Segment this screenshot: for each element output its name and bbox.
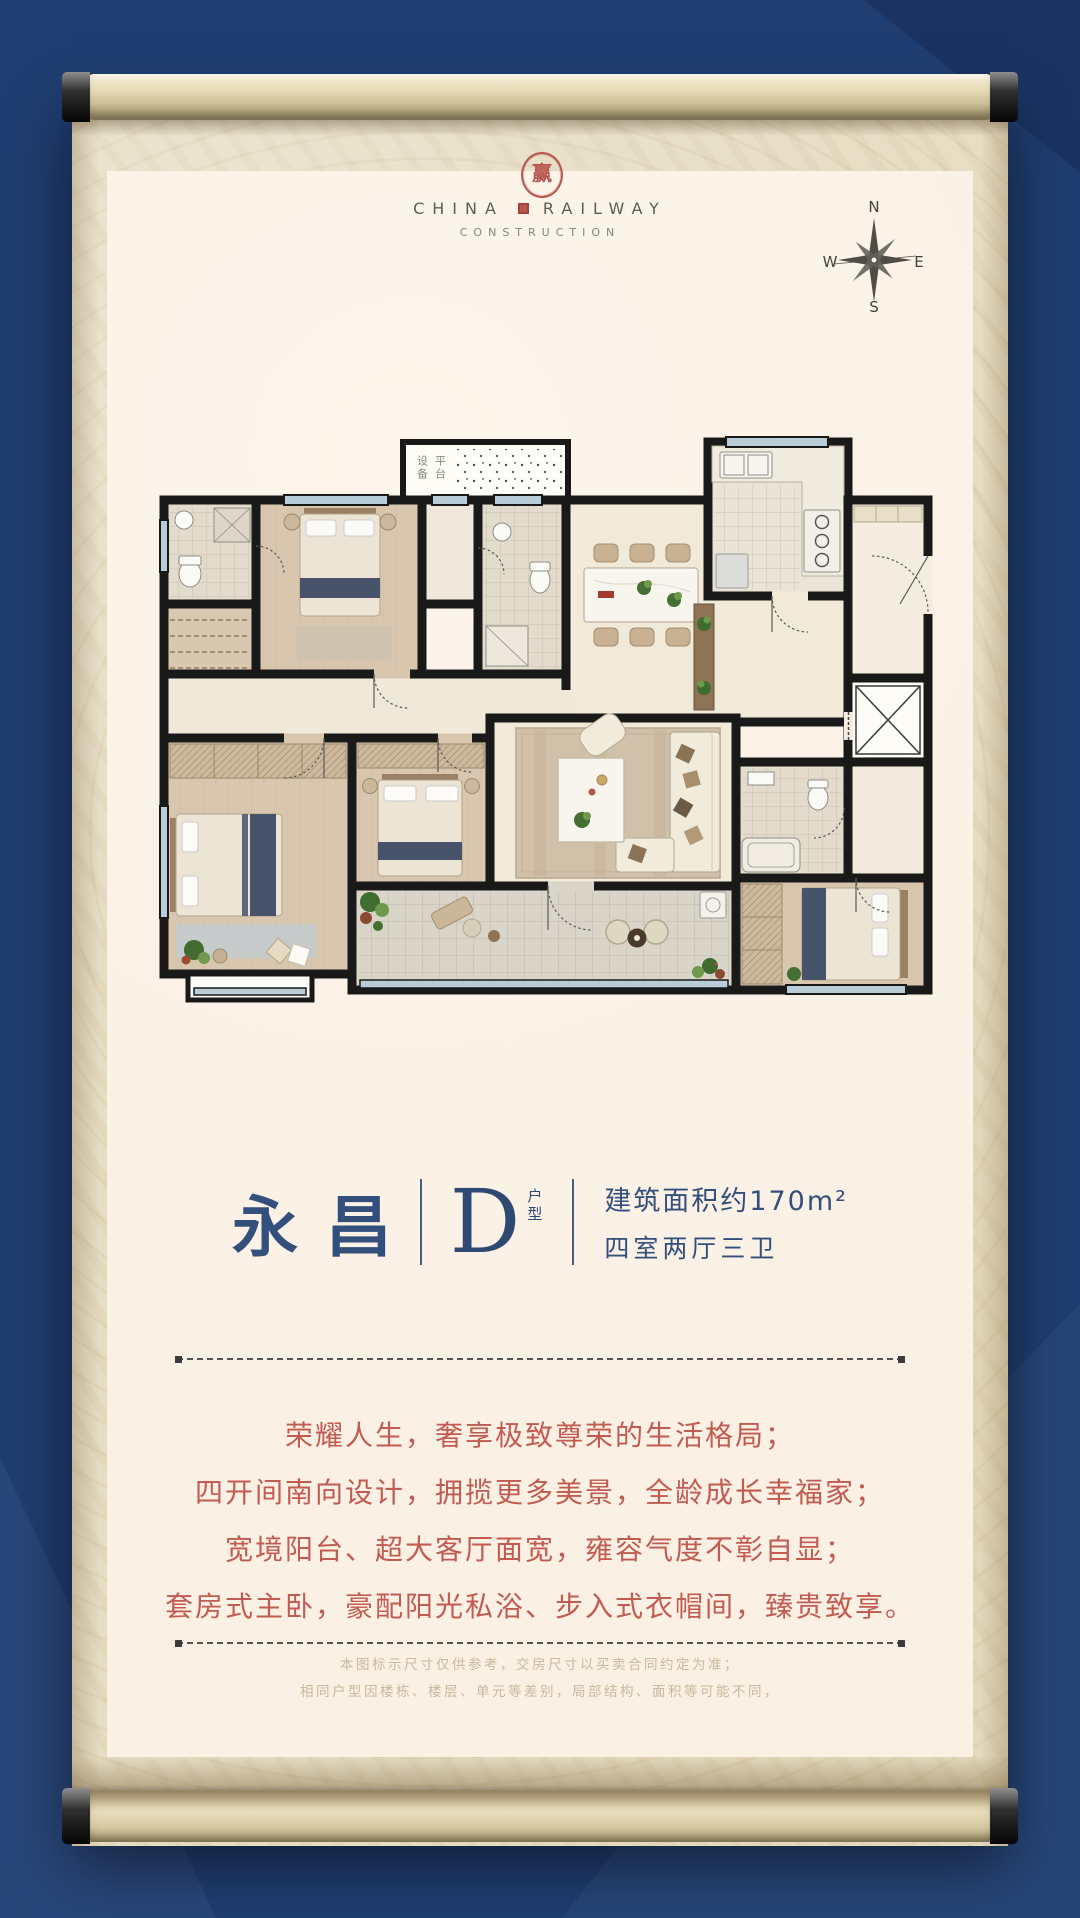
unit-type-label: 户型 [527,1187,544,1223]
console-plants [694,604,714,710]
room-bath-en-suite [736,762,848,878]
room-living [490,710,736,886]
room-master-bedroom [160,738,352,1000]
unit-letter: D [450,1178,521,1266]
bed-icon [378,774,462,876]
bed-icon [300,508,380,616]
disclaimer-line: 相同户型因楼栋、楼层、单元等差别，局部结构、面积等可能不同， [107,1679,973,1706]
room-equipment-platform: 设备 平台 [403,442,568,500]
brand-word-railway: RAILWAY [543,199,667,218]
scroll-roller-top [86,74,994,120]
room-balcony [352,886,736,990]
room-hallway-east [848,762,928,883]
svg-text:N: N [868,198,879,216]
marketing-line: 四开间南向设计，拥揽更多美景，全龄成长幸福家； [107,1464,973,1521]
unit-area: 建筑面积约170m² [604,1179,848,1218]
room-foyer [848,500,933,678]
unit-name: 永昌 [232,1174,419,1270]
svg-text:W: W [823,253,838,271]
marketing-copy: 荣耀人生，奢享极致尊荣的生活格局； 四开间南向设计，拥揽更多美景，全龄成长幸福家… [107,1407,973,1635]
roller-end-cap [990,1788,1018,1844]
brand-seal-icon: 赢 [521,152,563,198]
room-bedroom-north [256,495,422,674]
marketing-line: 荣耀人生，奢享极致尊荣的生活格局； [107,1407,973,1464]
compass-rose-icon: N W E S [818,196,930,314]
wardrobe-icon [170,744,346,778]
marketing-line: 宽境阳台、超大客厅面宽，雍容气度不彰自显； [107,1521,973,1578]
room-kitchen [708,437,848,596]
room-hall-small [422,495,478,604]
elevator-shaft [844,678,928,767]
unit-specs: 建筑面积约170m² 四室两厅三卫 [604,1179,848,1265]
coffee-table-icon [558,758,624,842]
room-bedroom-middle [352,738,490,886]
svg-text:设备: 设备 [416,455,429,481]
bed-icon [802,888,908,980]
brand-word-china: CHINA [413,199,504,218]
svg-text:E: E [914,253,923,271]
scroll-fold-shadow [72,1756,1008,1792]
title-divider [420,1179,422,1265]
brand-square-icon [518,203,529,214]
stove-icon [804,510,840,572]
washer-icon [700,892,726,918]
room-closet-left [164,604,256,674]
unit-title-block: 永昌 D 户型 建筑面积约170m² 四室两厅三卫 [107,1160,973,1284]
room-bath-second [478,495,566,674]
dashed-divider-top [177,1358,903,1360]
unit-layout: 四室两厅三卫 [604,1229,848,1265]
poster-canvas: 赢 CHINA RAILWAY CONSTRUCTION N W E S [0,0,1080,1918]
dashed-divider-bottom [177,1642,903,1644]
svg-text:平台: 平台 [434,455,447,481]
svg-text:S: S [869,298,879,314]
bed-icon [170,814,282,916]
roller-end-cap [62,72,90,122]
title-divider [572,1179,574,1265]
roller-end-cap [990,72,1018,122]
disclaimer: 本图标示尺寸仅供参考，交房尺寸以买卖合同约定为准； 相同户型因楼栋、楼层、单元等… [107,1652,973,1706]
roller-end-cap [62,1788,90,1844]
disclaimer-line: 本图标示尺寸仅供参考，交房尺寸以买卖合同约定为准； [107,1652,973,1679]
marketing-line: 套房式主卧，豪配阳光私浴、步入式衣帽间，臻贵致享。 [107,1578,973,1635]
roller-shadow [72,118,1008,136]
scroll-roller-bottom [86,1790,994,1842]
dining-table-icon [584,568,698,622]
room-bedroom-southeast [736,878,928,994]
room-bath-top-left [160,500,256,604]
floor-plan-image: 设备 平台 [150,428,940,1008]
